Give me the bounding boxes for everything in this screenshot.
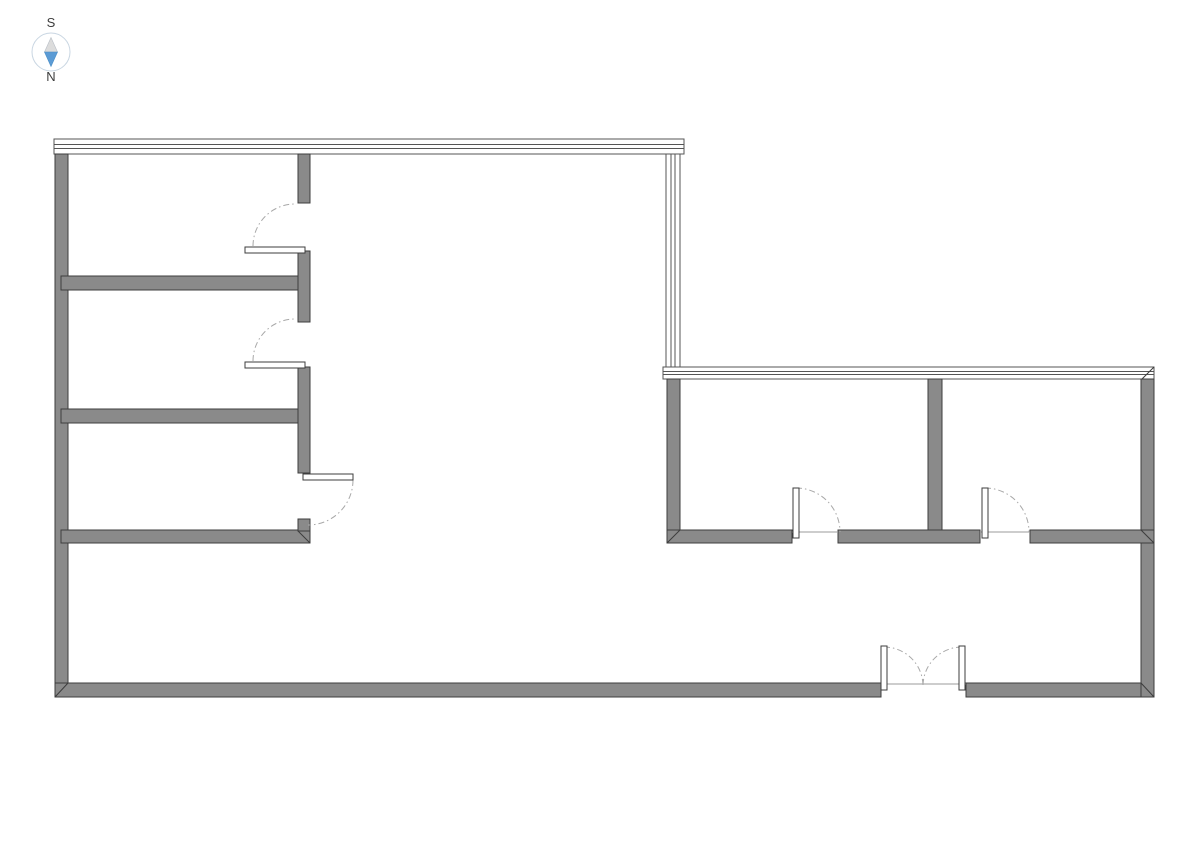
east-rooms-wall-south-a xyxy=(667,530,792,543)
interior-wall-h1 xyxy=(61,276,310,290)
door-leaf-entry-right xyxy=(959,646,965,690)
east-rooms-wall-south-b xyxy=(838,530,980,543)
door-leaf-west-room1 xyxy=(245,247,305,253)
east-rooms-wall-divider xyxy=(928,379,942,543)
door-leaf-west-room3 xyxy=(303,474,353,480)
window-band-mid-horizontal xyxy=(663,367,1154,379)
east-rooms-wall-south-c xyxy=(1030,530,1154,543)
door-leaf-west-room2 xyxy=(245,362,305,368)
interior-wall-h3 xyxy=(61,530,310,543)
compass-south-label: S xyxy=(47,15,56,30)
door-swing-east-room2 xyxy=(985,488,1029,532)
compass-north-label: N xyxy=(46,69,55,84)
interior-wall-h2 xyxy=(61,409,310,423)
east-rooms-wall-west xyxy=(667,379,680,543)
window-band-north xyxy=(54,139,684,154)
compass: S N xyxy=(32,15,70,84)
door-leaf-entry-left xyxy=(881,646,887,690)
compass-needle-upper xyxy=(45,38,58,53)
plan-geometry xyxy=(54,139,1154,697)
door-swing-west-room2 xyxy=(253,319,295,361)
door-swing-entry-right xyxy=(923,647,962,686)
floor-plan-svg: S N xyxy=(0,0,1191,842)
door-swing-west-room3 xyxy=(308,480,353,525)
door-leaf-east-room2 xyxy=(982,488,988,538)
compass-needle-lower xyxy=(45,52,58,67)
floor-plan-page: S N xyxy=(0,0,1191,842)
exterior-wall-west xyxy=(55,154,68,697)
door-leaf-east-room1 xyxy=(793,488,799,538)
door-swing-west-room1 xyxy=(253,204,295,246)
interior-wall-v-seg1 xyxy=(298,154,310,203)
interior-wall-v-seg3 xyxy=(298,367,310,473)
door-swing-east-room1 xyxy=(796,488,840,532)
window-band-mid-vertical xyxy=(666,154,680,367)
exterior-wall-south-left xyxy=(55,683,881,697)
exterior-wall-south-right xyxy=(966,683,1154,697)
interior-wall-v-seg2 xyxy=(298,251,310,322)
door-swing-entry-left xyxy=(884,647,923,686)
